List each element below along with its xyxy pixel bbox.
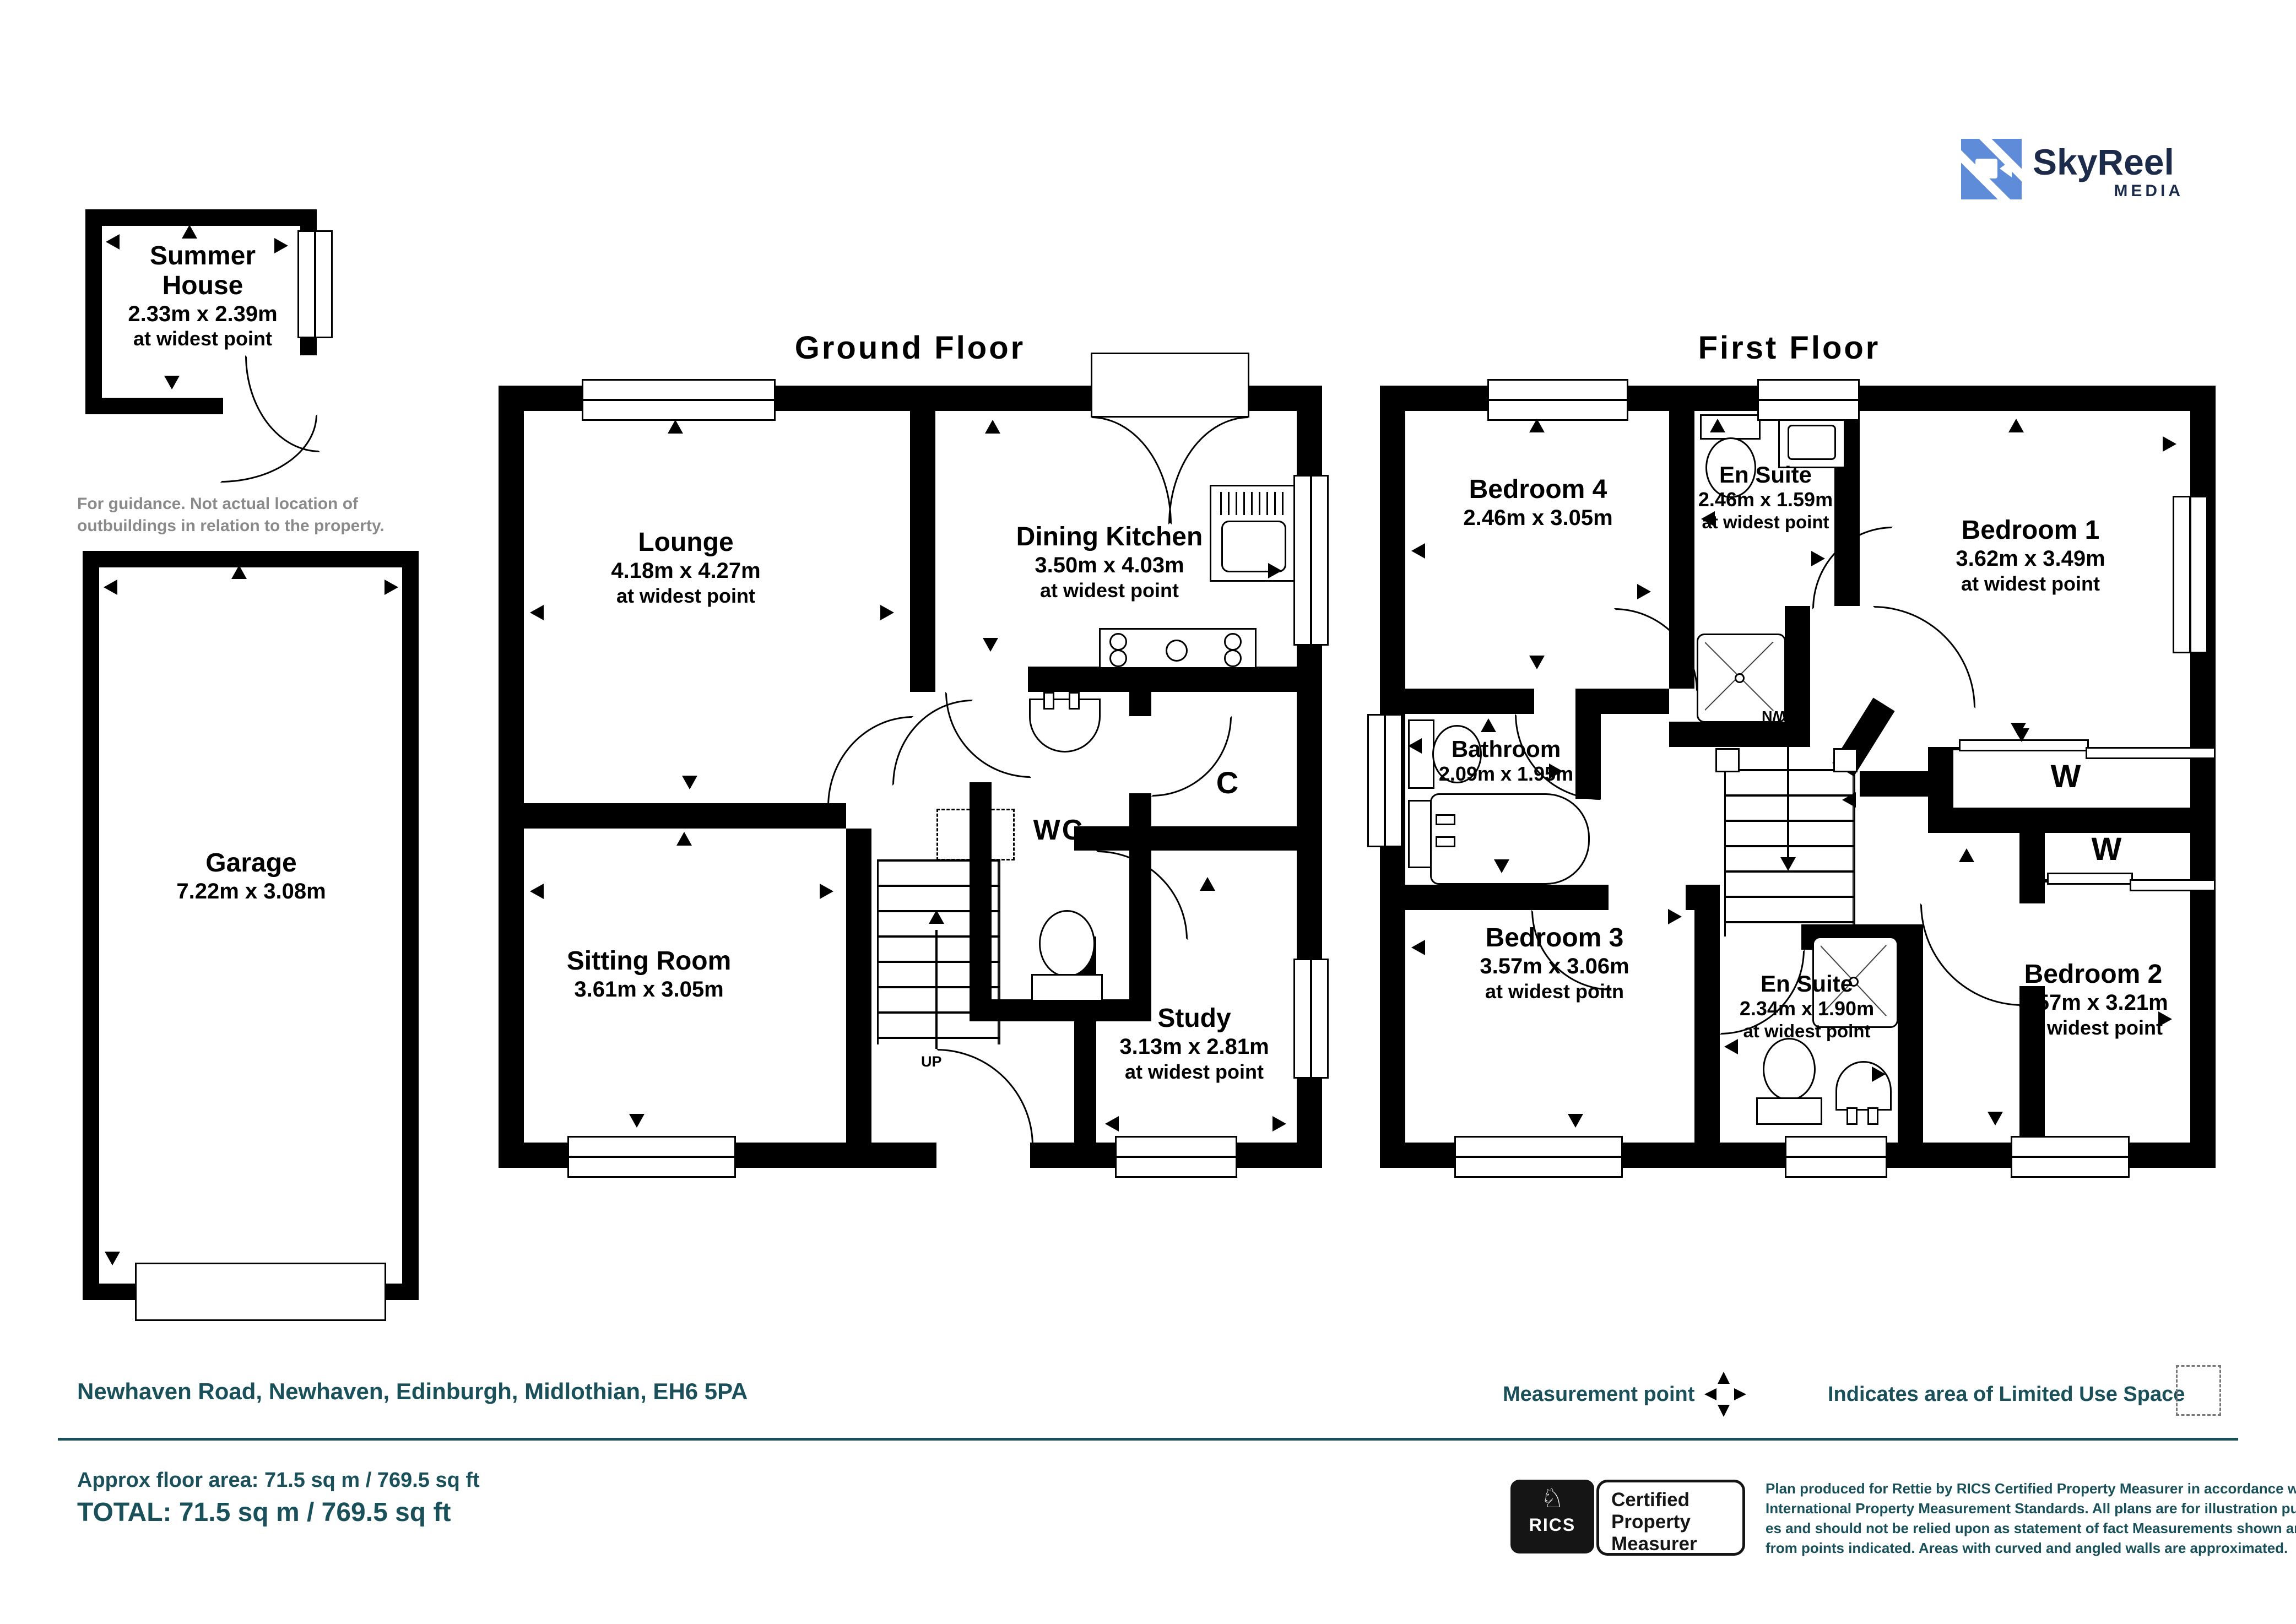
sink-basin [1788, 425, 1836, 460]
toilet-cistern [1408, 719, 1434, 789]
measure-arrow-icon [231, 565, 247, 579]
room-label-bathroom: Bathroom 2.09m x 1.95m [1439, 736, 1573, 786]
arrow-up-icon [1718, 1372, 1730, 1384]
room-note: at widest point [611, 584, 760, 607]
room-dims: 2.09m x 1.95m [1439, 762, 1573, 786]
room-dims: 3.62m x 3.49m [1956, 545, 2105, 572]
window [1293, 475, 1329, 646]
window [1757, 379, 1860, 421]
wall [1074, 826, 1297, 851]
wall [1129, 692, 1151, 716]
measure-arrow-icon [106, 234, 120, 250]
certified-property-measurer-badge: Certified Property Measurer [1596, 1480, 1745, 1556]
disclaimer-line: International Property Measurement Stand… [1766, 1498, 2296, 1518]
stairs-up-arrow-icon [929, 910, 944, 924]
room-note: at widest point [1016, 579, 1203, 602]
stairs-arrow-line [935, 930, 938, 1049]
tap-icon [1846, 1107, 1858, 1125]
ground-floor-title: Ground Floor [795, 329, 1026, 366]
arrow-left-icon [1704, 1388, 1716, 1400]
stairs-down-arrow-icon [1780, 857, 1796, 871]
room-label-cupboard: C [1216, 766, 1238, 800]
wall [1380, 689, 1534, 714]
door-arc [1873, 606, 1975, 708]
room-note: at widest point [1119, 1060, 1269, 1083]
logo-wordmark: SkyReel [2033, 141, 2174, 183]
room-label-bedroom4: Bedroom 4 2.46m x 3.05m [1463, 475, 1612, 532]
wall [85, 209, 102, 414]
measure-arrow-icon [530, 884, 544, 899]
toilet-cistern [1700, 414, 1761, 440]
door-arc [936, 1049, 1033, 1146]
room-dims: 4.18m x 4.27m [611, 557, 760, 584]
address: Newhaven Road, Newhaven, Edinburgh, Midl… [77, 1378, 748, 1405]
measure-arrow-icon [1637, 584, 1651, 599]
measure-arrow-icon [1988, 1112, 2003, 1125]
room-dims: 3.13m x 2.81m [1119, 1033, 1269, 1060]
measure-arrow-icon [880, 605, 894, 620]
room-name: Bedroom 2 [2018, 960, 2168, 989]
room-label-study: Study 3.13m x 2.81m at widest point [1119, 1004, 1269, 1083]
room-label-bedroom1: Bedroom 1 3.62m x 3.49m at widest point [1956, 516, 2105, 595]
room-name: W [2051, 759, 2081, 795]
measure-arrow-icon [1668, 909, 1682, 924]
room-name: Sitting Room [567, 946, 732, 976]
measure-arrow-icon [1481, 718, 1496, 732]
measure-arrow-icon [182, 225, 197, 239]
rics-brand: RICS [1510, 1515, 1594, 1535]
room-dims: 3.57m x 3.21m [2018, 989, 2168, 1016]
kitchen-sink-icon [1210, 485, 1297, 582]
room-note: at widest point [1740, 1021, 1874, 1042]
wall [1598, 689, 1669, 714]
room-dims: 2.46m x 1.59m [1698, 488, 1833, 512]
window [1115, 1136, 1237, 1178]
room-dims: 2.33m x 2.39m [120, 301, 285, 328]
room-label-sitting-room: Sitting Room 3.61m x 3.05m [567, 946, 732, 1003]
room-name: Bedroom 1 [1956, 516, 2105, 545]
measure-arrow-icon [985, 420, 1000, 434]
approx-area: Approx floor area: 71.5 sq m / 769.5 sq … [77, 1469, 480, 1492]
wall [85, 398, 223, 414]
room-note: at widest point [120, 327, 285, 350]
window [1367, 714, 1402, 847]
measure-arrow-icon [1200, 877, 1215, 891]
limited-use-label: Indicates area of Limited Use Space [1828, 1383, 2185, 1406]
measure-arrow-icon [1529, 419, 1545, 432]
room-name: En Suite [1740, 971, 1874, 997]
room-name: C [1216, 766, 1238, 800]
measure-arrow-icon [1268, 563, 1282, 578]
wall [1928, 808, 2216, 833]
measure-arrow-icon [1408, 738, 1422, 754]
burner-icon [1109, 633, 1127, 651]
room-note: at widest point [2018, 1016, 2168, 1039]
wall [1669, 411, 1694, 689]
logo-tagline: MEDIA [2034, 182, 2184, 201]
burner-icon [1109, 649, 1127, 667]
wall [402, 551, 419, 1300]
toilet-icon [1039, 910, 1095, 977]
hob-icon [1099, 628, 1257, 669]
measure-arrow-icon [104, 580, 117, 595]
room-name: Bedroom 3 [1480, 923, 1629, 953]
rics-logo: ♘ RICS [1510, 1480, 1594, 1553]
room-dims: 2.46m x 3.05m [1463, 505, 1612, 532]
wall [846, 829, 871, 1143]
arrow-down-icon [1718, 1405, 1730, 1417]
disclaimer-line: es and should not be relied upon as stat… [1766, 1518, 2296, 1538]
room-name: Bathroom [1439, 736, 1573, 762]
first-floor-title: First Floor [1698, 329, 1881, 366]
room-name: Bedroom 4 [1463, 475, 1612, 505]
room-label-dining-kitchen: Dining Kitchen 3.50m x 4.03m at widest p… [1016, 522, 1203, 602]
measure-arrow-icon [1872, 1067, 1886, 1082]
toilet-cistern [1031, 974, 1103, 1002]
measure-arrow-icon [1811, 551, 1825, 566]
ensuite-sink-icon [1778, 416, 1845, 468]
measurement-point-icon [1703, 1372, 1747, 1418]
sliding-door [2047, 873, 2133, 885]
wall [1898, 924, 1923, 1143]
newel-post [1833, 748, 1858, 772]
room-dims: 3.61m x 3.05m [567, 976, 732, 1003]
stairs-up-label: UP [921, 1053, 942, 1070]
measure-arrow-icon [2008, 419, 2024, 432]
window [2011, 1136, 2130, 1178]
disclaimer-line: Plan produced for Rettie by RICS Certifi… [1766, 1479, 2296, 1498]
stairs-arrow-line [1787, 733, 1789, 859]
room-note: at widest point [1956, 572, 2105, 595]
room-note: at widest point [1698, 512, 1833, 533]
door-arc [892, 700, 973, 786]
wall [85, 209, 317, 226]
measure-arrow-icon [1529, 656, 1545, 669]
room-note: at widest poitn [1480, 980, 1629, 1003]
measure-arrow-icon [983, 638, 998, 652]
room-label-wc: WC [1033, 814, 1085, 846]
window [2173, 496, 2208, 653]
measure-arrow-icon [1494, 859, 1509, 873]
window [567, 1136, 736, 1178]
stairs-down-label: DOWN [1762, 707, 1808, 724]
room-name: WC [1033, 814, 1085, 846]
arrow-right-icon [1734, 1388, 1746, 1400]
total-area: TOTAL: 71.5 sq m / 769.5 sq ft [77, 1497, 451, 1528]
wc-sink-icon [1029, 699, 1101, 753]
room-name: En Suite [1698, 462, 1833, 488]
garage-door [135, 1263, 386, 1321]
french-door-panel [1091, 353, 1249, 418]
room-name: W [2092, 832, 2122, 868]
skyreel-logo-icon [1961, 139, 2022, 199]
window [582, 379, 776, 421]
measure-arrow-icon [1710, 419, 1725, 432]
room-name: Garage [176, 848, 326, 878]
badge-line: Certified [1611, 1489, 1742, 1511]
measure-arrow-icon [2163, 436, 2176, 452]
stairs [1724, 769, 1855, 936]
window [1293, 959, 1329, 1079]
room-label-wardrobe1: W [2051, 759, 2081, 795]
room-dims: 7.22m x 3.08m [176, 878, 326, 905]
burner-icon [1224, 633, 1242, 651]
room-dims: 3.57m x 3.06m [1480, 953, 1629, 980]
room-label-summer-house: Summer House 2.33m x 2.39m at widest poi… [120, 241, 285, 350]
wall [2019, 833, 2045, 903]
measure-arrow-icon [1568, 1114, 1583, 1128]
measure-arrow-icon [682, 776, 697, 789]
measure-arrow-icon [1411, 940, 1425, 955]
wall [910, 411, 935, 692]
wall [1028, 667, 1297, 692]
badge-line: Property [1611, 1511, 1742, 1533]
wall [1694, 885, 1720, 1143]
door-arc [1091, 416, 1172, 524]
wall [83, 551, 419, 567]
divider [58, 1438, 2238, 1441]
toilet-icon [1763, 1038, 1816, 1101]
limited-use-icon [2176, 1365, 2221, 1416]
room-name: Summer House [120, 241, 285, 301]
window [1454, 1136, 1623, 1178]
toilet-cistern [1756, 1097, 1822, 1125]
room-label-lounge: Lounge 4.18m x 4.27m at widest point [611, 528, 760, 607]
camera-lens-icon [2000, 160, 2012, 177]
measure-arrow-icon [676, 832, 692, 846]
outbuilding-caption: For guidance. Not actual location of out… [77, 493, 430, 537]
wall [83, 551, 99, 1300]
wall [1785, 606, 1810, 722]
rics-crest-icon: ♘ [1510, 1483, 1594, 1515]
floorplan-page: SkyReel MEDIA Summer House 2.33m x 2.39m… [0, 0, 2296, 1624]
disclaimer-line: from points indicated. Areas with curved… [1766, 1538, 2288, 1558]
sliding-door [2086, 747, 2216, 759]
measure-arrow-icon [385, 580, 398, 595]
tap-icon [1436, 836, 1455, 847]
room-dims: 2.34m x 1.90m [1740, 997, 1874, 1021]
wall [1380, 885, 1609, 910]
room-dims: 3.50m x 4.03m [1016, 552, 1203, 579]
room-label-bedroom3: Bedroom 3 3.57m x 3.06m at widest poitn [1480, 923, 1629, 1003]
wall [970, 782, 992, 1021]
window [297, 230, 333, 338]
wall [1575, 689, 1601, 799]
window [1785, 1136, 1887, 1178]
tap-icon [1043, 692, 1054, 710]
measurement-point-label: Measurement point [1503, 1383, 1694, 1406]
sliding-door [2130, 879, 2216, 891]
wall [499, 803, 846, 829]
newel-post [1715, 748, 1740, 772]
measure-arrow-icon [629, 1114, 645, 1128]
measure-arrow-icon [530, 605, 544, 620]
measure-arrow-icon [1959, 848, 1974, 862]
tap-icon [1867, 1107, 1878, 1125]
window [1487, 379, 1628, 421]
measure-arrow-icon [1411, 543, 1425, 559]
burner-icon [1166, 640, 1188, 662]
door-arc [1920, 903, 2023, 1006]
measure-arrow-icon [668, 420, 683, 434]
room-name: Dining Kitchen [1016, 522, 1203, 552]
room-label-wardrobe2: W [2092, 832, 2122, 868]
room-label-garage: Garage 7.22m x 3.08m [176, 848, 326, 905]
measure-arrow-icon [2014, 728, 2029, 742]
measure-arrow-icon [1272, 1116, 1286, 1132]
tap-icon [1069, 692, 1080, 710]
room-name: Study [1119, 1004, 1269, 1033]
room-label-ensuite1: En Suite 2.46m x 1.59m at widest point [1698, 462, 1833, 533]
room-label-bedroom2: Bedroom 2 3.57m x 3.21m at widest point [2018, 960, 2168, 1039]
badge-line: Measurer [1611, 1533, 1742, 1555]
drainer-grooves [1220, 492, 1285, 515]
room-name: Lounge [611, 528, 760, 557]
measure-arrow-icon [105, 1252, 120, 1265]
measure-arrow-icon [1842, 792, 1856, 808]
wall [499, 386, 524, 1168]
burner-icon [1224, 649, 1242, 667]
tap-icon [1436, 814, 1455, 825]
measure-arrow-icon [820, 884, 833, 899]
room-label-ensuite2: En Suite 2.34m x 1.90m at widest point [1740, 971, 1874, 1042]
measure-arrow-icon [1724, 1039, 1738, 1054]
measure-arrow-icon [1105, 1116, 1119, 1132]
measure-arrow-icon [164, 376, 180, 389]
camera-icon [1975, 159, 1997, 178]
